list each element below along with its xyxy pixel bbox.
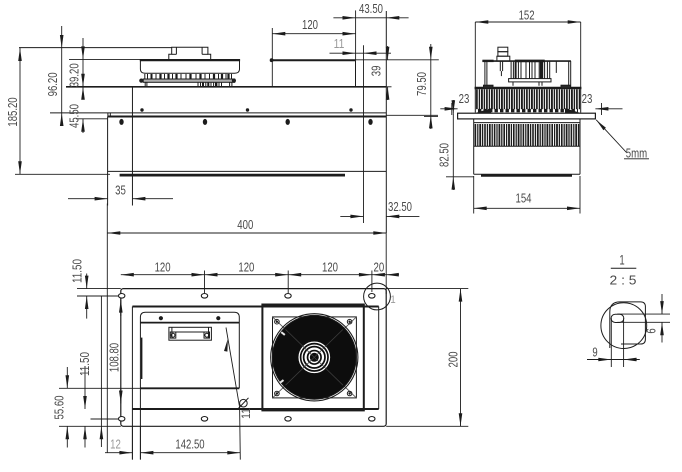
svg-text:55.60: 55.60 [53, 396, 67, 420]
svg-text:35: 35 [115, 184, 126, 198]
svg-text:108.80: 108.80 [108, 343, 122, 372]
svg-text:45.50: 45.50 [68, 104, 82, 128]
svg-text:120: 120 [322, 261, 338, 275]
svg-text:23: 23 [582, 92, 593, 106]
svg-text:200: 200 [446, 352, 460, 368]
svg-text:120: 120 [302, 18, 318, 32]
svg-text:79.50: 79.50 [415, 72, 429, 96]
svg-text:1: 1 [619, 252, 624, 268]
svg-text:12: 12 [110, 438, 121, 452]
svg-text:120: 120 [238, 261, 254, 275]
svg-text:43.50: 43.50 [359, 2, 383, 16]
svg-text:142.50: 142.50 [175, 438, 204, 452]
svg-text:11: 11 [334, 37, 345, 51]
svg-text:11: 11 [241, 408, 253, 419]
svg-text:6: 6 [645, 328, 659, 333]
svg-text:82.50: 82.50 [438, 143, 452, 167]
svg-text:11.50: 11.50 [78, 352, 92, 376]
svg-text:1: 1 [390, 294, 395, 306]
svg-text:39.20: 39.20 [68, 63, 82, 87]
svg-text:154: 154 [516, 192, 532, 206]
svg-text:9: 9 [592, 346, 597, 360]
svg-text:120: 120 [155, 261, 171, 275]
svg-text:2 : 5: 2 : 5 [610, 273, 637, 288]
svg-text:185.20: 185.20 [6, 97, 20, 126]
svg-text:23: 23 [459, 92, 470, 106]
svg-text:32.50: 32.50 [388, 200, 412, 214]
svg-text:152: 152 [519, 9, 535, 23]
svg-text:39: 39 [370, 66, 384, 77]
svg-text:20: 20 [374, 261, 385, 275]
svg-text:96.20: 96.20 [46, 72, 60, 96]
svg-text:11.50: 11.50 [71, 259, 85, 283]
svg-text:400: 400 [237, 218, 253, 232]
